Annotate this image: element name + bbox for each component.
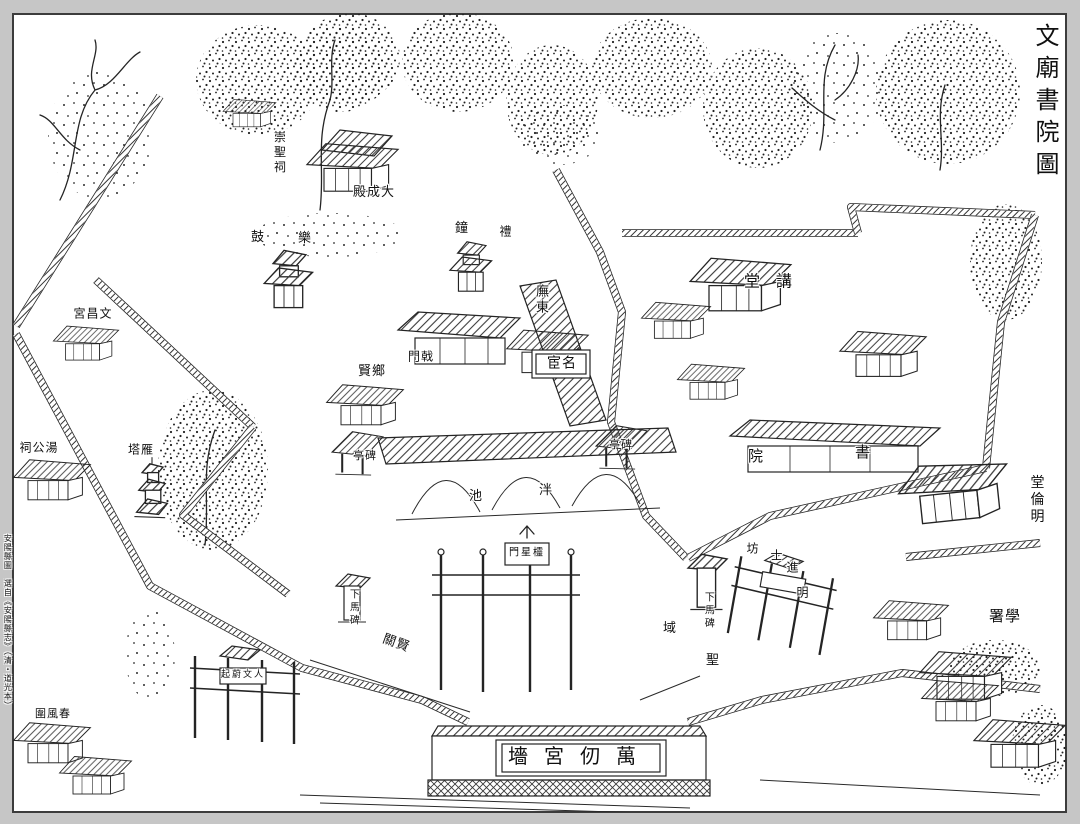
label-margin-caption: 安陽縣圖 選自《安陽縣志》（清・道光本） <box>3 534 12 710</box>
label-ming-jinshi-arch-ming: 明 <box>796 587 809 600</box>
label-ming-jinshi-arch-shi: 士 <box>770 550 783 563</box>
label-shengyu-yu: 域 <box>663 622 677 636</box>
label-dacheng-hall: 殿成大 <box>353 186 395 200</box>
label-academy-shu: 書 <box>855 444 871 460</box>
label-minglun-hall: 堂倫明 <box>1028 475 1043 526</box>
label-xueshu-office: 署學 <box>989 608 1021 624</box>
label-renwen-arch: 起蔚文人 <box>221 671 265 681</box>
label-yanta-pagoda: 塔雁 <box>128 444 154 457</box>
label-dismount-stele-east: 下馬碑 <box>702 592 713 631</box>
label-li-gate: 禮 <box>499 226 512 239</box>
label-east-corridor: 廡東 <box>533 284 547 316</box>
label-pan-pond-chi: 池 <box>469 490 483 504</box>
label-xiangxian-shrine: 賢鄉 <box>358 365 386 379</box>
label-lingxing-gate: 門星欞 <box>509 549 545 560</box>
label-ming-jinshi-arch-jin: 進 <box>786 562 799 575</box>
label-bell-tower: 鐘 <box>455 222 469 236</box>
label-academy-yuan: 院 <box>748 448 764 464</box>
label-shengyu-sheng: 聖 <box>706 654 720 668</box>
label-drum-tower: 鼓 <box>251 231 265 245</box>
woodblock-map-page: 文廟書院圖安陽縣圖 選自《安陽縣志》（清・道光本）崇聖祠殿成大鼓樂鐘禮廡東門戟宦… <box>0 0 1080 824</box>
label-minghuan-shrine: 宦名 <box>547 356 577 371</box>
label-stele-pavilion-east: 亭碑 <box>609 439 633 451</box>
engraving-scene <box>0 0 1080 824</box>
label-lecture-hall: 堂講 <box>744 272 808 289</box>
label-title: 文廟書院圖 <box>1031 23 1057 183</box>
label-pan-pond-pan: 泮 <box>539 484 553 498</box>
label-chunfeng-enclosure: 圍風春 <box>35 708 71 720</box>
label-wanren-palace-wall: 墻宮仞萬 <box>508 746 652 768</box>
label-tanggong-shrine: 祠公湯 <box>19 442 58 455</box>
label-ming-jinshi-arch-fang: 坊 <box>746 543 759 556</box>
label-ji-gate: 門戟 <box>408 351 434 364</box>
label-chongsheng-shrine: 崇聖祠 <box>273 131 286 176</box>
label-music-tower: 樂 <box>298 232 312 246</box>
label-dismount-stele-west: 下馬碑 <box>347 589 358 628</box>
label-wenchang-palace: 宮昌文 <box>73 308 112 321</box>
label-stele-pavilion-west: 亭碑 <box>353 450 377 462</box>
